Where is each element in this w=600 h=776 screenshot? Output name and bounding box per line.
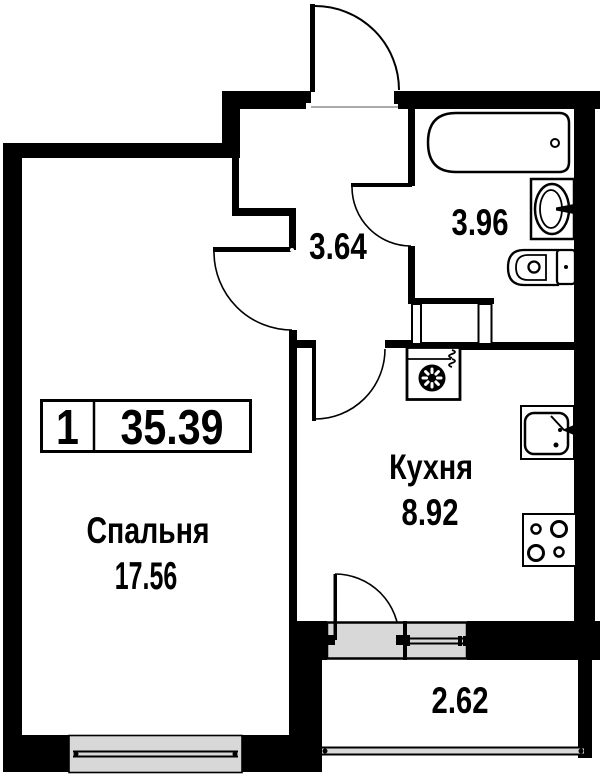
svg-text:Кухня: Кухня <box>389 447 473 486</box>
svg-text:3.64: 3.64 <box>309 226 367 268</box>
svg-text:8.92: 8.92 <box>402 493 459 534</box>
svg-text:2.62: 2.62 <box>432 681 489 722</box>
svg-text:35.39: 35.39 <box>120 400 223 455</box>
svg-text:3.96: 3.96 <box>452 203 509 244</box>
svg-text:Спальня: Спальня <box>86 509 209 550</box>
svg-text:1: 1 <box>56 400 79 455</box>
svg-text:17.56: 17.56 <box>115 553 177 597</box>
